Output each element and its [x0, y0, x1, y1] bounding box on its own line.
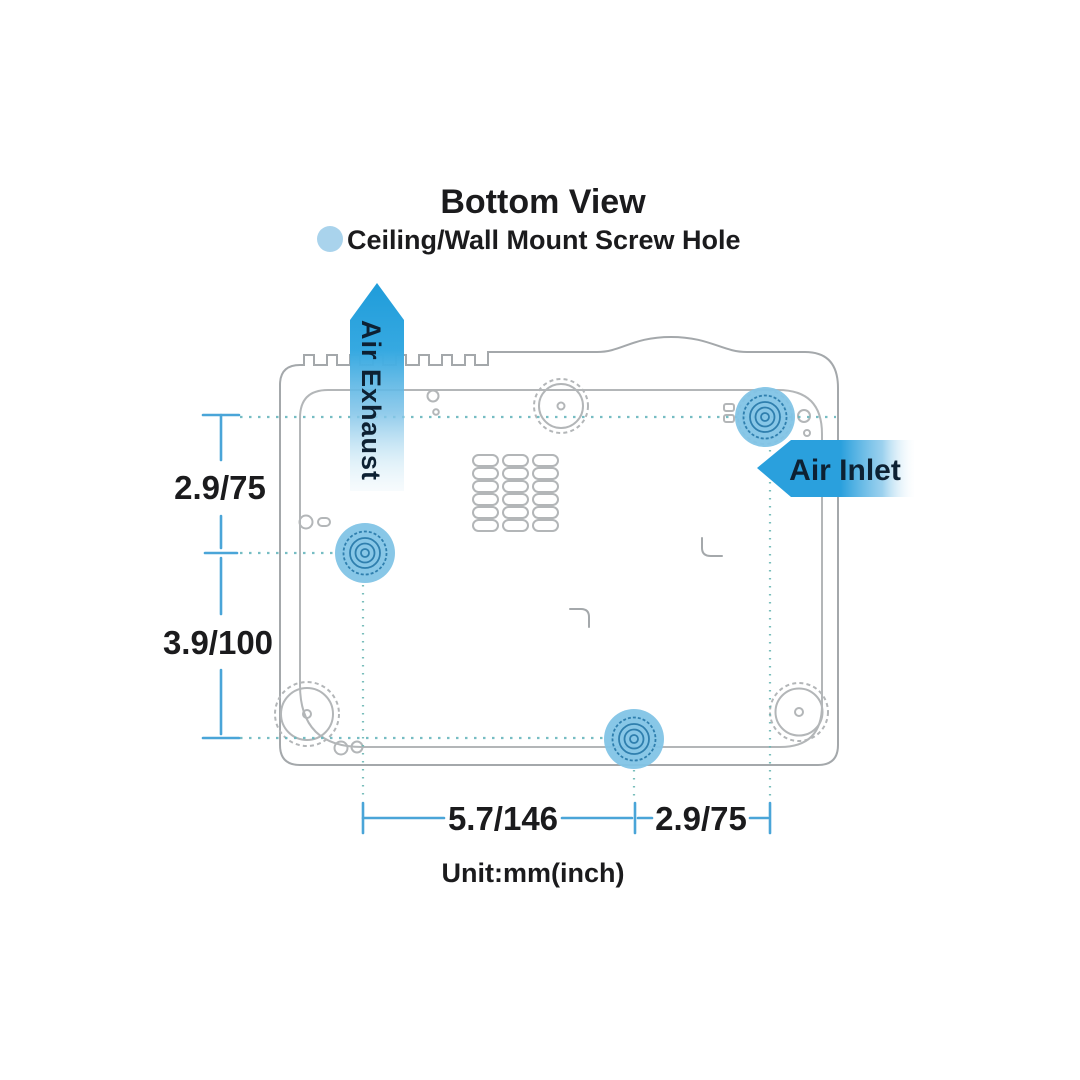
dim-label-left-top: 2.9/75 [174, 469, 266, 506]
screw-icon [804, 430, 810, 436]
panel-mark-center [570, 609, 589, 627]
screw-icon [300, 516, 313, 529]
vent-slot [533, 507, 558, 518]
vent-slot [533, 520, 558, 531]
air-exhaust-label: Air Exhaust [356, 320, 386, 481]
screw-icon [724, 415, 734, 422]
foot-rim [281, 688, 333, 740]
foot-rim [776, 689, 823, 736]
construction-lines [240, 417, 836, 800]
screw-hole-legend-icon [317, 226, 343, 252]
vent-slot [503, 520, 528, 531]
air-inlet-label: Air Inlet [789, 454, 901, 487]
vent-slot [503, 455, 528, 466]
vent-slot [503, 494, 528, 505]
unit-note: Unit:mm(inch) [442, 858, 625, 888]
vent-slot [533, 494, 558, 505]
legend-label: Ceiling/Wall Mount Screw Hole [347, 225, 741, 255]
dimension-bottom: 5.7/146 2.9/75 [363, 800, 770, 837]
vent-slot [473, 520, 498, 531]
panel-mark-right [702, 538, 722, 556]
dim-label-bottom-left: 5.7/146 [448, 800, 558, 837]
screw-icon [318, 518, 330, 526]
bottom-view-page: Bottom View Ceiling/Wall Mount Screw Hol… [0, 0, 1080, 1080]
foot-teeth [770, 683, 828, 741]
page-title: Bottom View [440, 183, 646, 221]
dim-label-bottom-right: 2.9/75 [655, 800, 747, 837]
vent-slot [473, 481, 498, 492]
screw-icon [433, 409, 439, 415]
vent-slot [473, 494, 498, 505]
dim-label-left-bottom: 3.9/100 [163, 624, 273, 661]
foot-center [558, 403, 565, 410]
foot-wheel-top-center [534, 379, 588, 433]
screw-hole-left-middle [335, 523, 395, 583]
screw-icon [724, 404, 734, 411]
air-exhaust-arrow: Air Exhaust [350, 283, 404, 491]
foot-teeth [275, 682, 339, 746]
vent-slot [503, 468, 528, 479]
bottom-view-diagram: Bottom View Ceiling/Wall Mount Screw Hol… [0, 0, 1080, 1080]
vent-slot [533, 455, 558, 466]
screw-hole-bottom-center [604, 709, 664, 769]
vent-slot [533, 481, 558, 492]
screw-icon [335, 742, 348, 755]
foot-center [795, 708, 803, 716]
foot-teeth [534, 379, 588, 433]
foot-wheel-bottom-right [770, 683, 828, 741]
vent-slot [533, 468, 558, 479]
dimension-left: 2.9/75 3.9/100 [163, 415, 273, 738]
foot-wheel-bottom-left [275, 682, 339, 746]
vent-slot [473, 507, 498, 518]
screw-hole-top-right [735, 387, 795, 447]
vent-slot [503, 481, 528, 492]
air-inlet-arrow: Air Inlet [757, 440, 914, 497]
vent-slot [473, 455, 498, 466]
vent-slot [473, 468, 498, 479]
screw-icon [428, 391, 439, 402]
vent-grid [473, 455, 558, 531]
vent-slot [503, 507, 528, 518]
